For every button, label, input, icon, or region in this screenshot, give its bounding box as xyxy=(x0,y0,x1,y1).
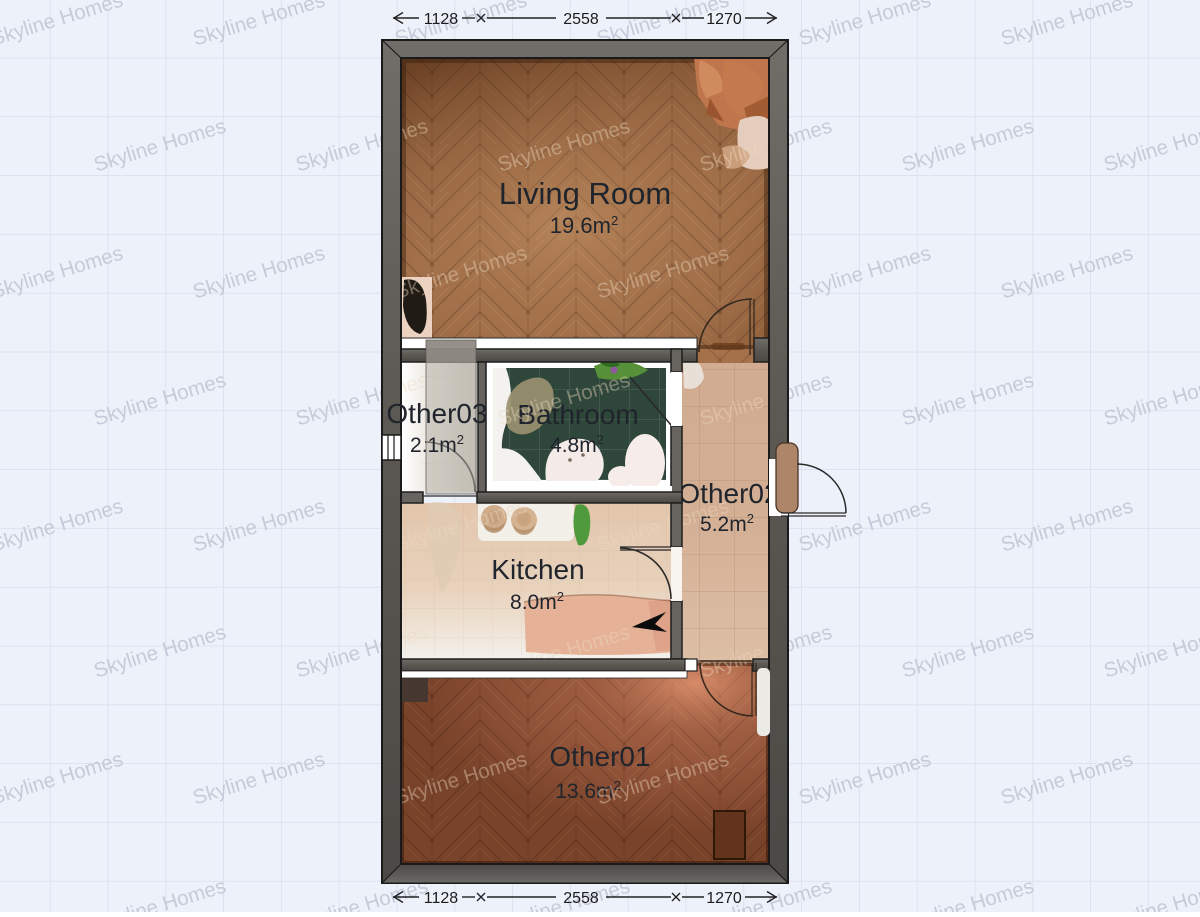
svg-text:8.0m2: 8.0m2 xyxy=(510,589,564,614)
svg-text:2558: 2558 xyxy=(563,890,599,907)
svg-text:2558: 2558 xyxy=(563,11,599,28)
svg-text:1270: 1270 xyxy=(706,11,742,28)
svg-text:1128: 1128 xyxy=(424,890,459,907)
svg-text:2.1m2: 2.1m2 xyxy=(410,432,464,457)
svg-text:Living Room: Living Room xyxy=(499,176,671,211)
svg-text:19.6m2: 19.6m2 xyxy=(550,213,618,238)
svg-text:Kitchen: Kitchen xyxy=(491,554,584,585)
svg-text:1270: 1270 xyxy=(706,890,742,907)
svg-text:Other01: Other01 xyxy=(549,741,650,772)
svg-text:4.8m2: 4.8m2 xyxy=(550,432,604,457)
svg-text:Other03: Other03 xyxy=(386,398,487,429)
svg-text:1128: 1128 xyxy=(424,11,459,28)
